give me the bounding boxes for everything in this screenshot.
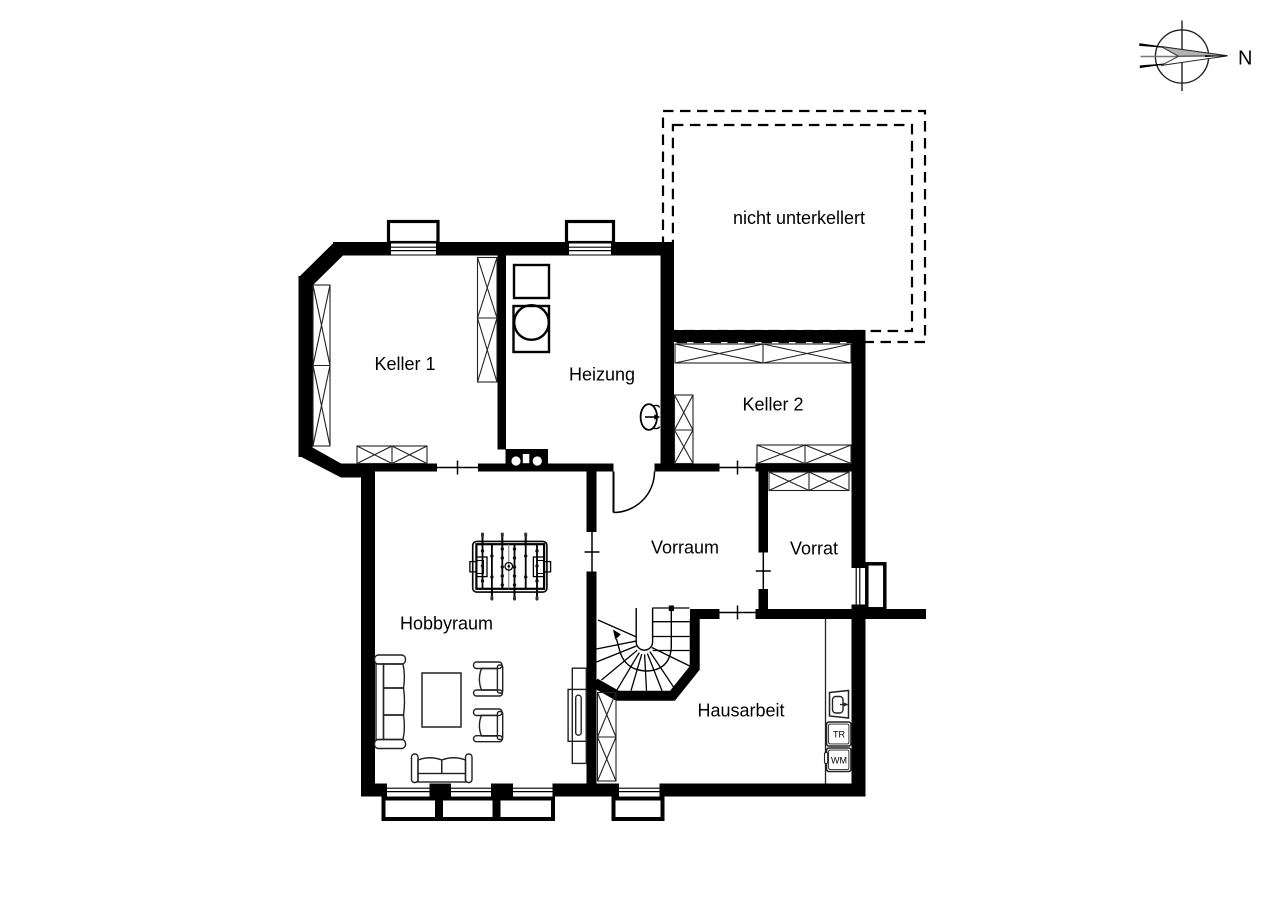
- svg-text:Keller 2: Keller 2: [742, 395, 803, 415]
- svg-text:Vorraum: Vorraum: [651, 538, 719, 558]
- svg-text:N: N: [1238, 48, 1252, 70]
- svg-text:Hobbyraum: Hobbyraum: [400, 614, 493, 634]
- svg-text:Heizung: Heizung: [569, 365, 635, 385]
- svg-text:Keller 1: Keller 1: [374, 354, 435, 374]
- svg-text:nicht unterkellert: nicht unterkellert: [733, 208, 865, 228]
- svg-text:TR: TR: [833, 730, 845, 740]
- svg-text:WM: WM: [831, 756, 847, 766]
- svg-text:Vorrat: Vorrat: [790, 539, 838, 559]
- svg-text:Hausarbeit: Hausarbeit: [697, 701, 784, 721]
